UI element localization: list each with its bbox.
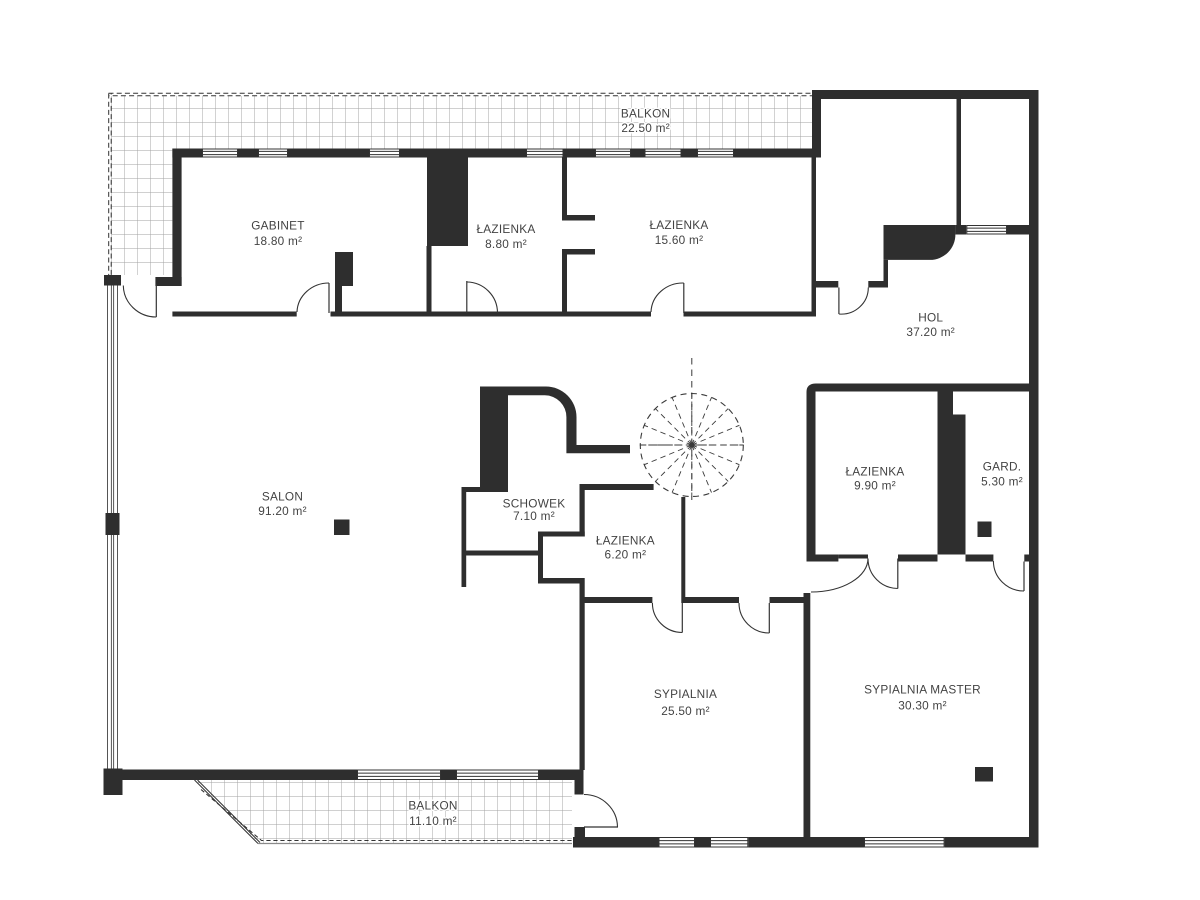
svg-text:18.80 m²: 18.80 m² — [254, 234, 303, 248]
svg-text:SALON: SALON — [262, 489, 303, 503]
svg-text:SYPIALNIA: SYPIALNIA — [654, 687, 717, 701]
svg-text:9.90 m²: 9.90 m² — [854, 478, 896, 492]
svg-text:ŁAZIENKA: ŁAZIENKA — [476, 222, 535, 236]
svg-text:ŁAZIENKA: ŁAZIENKA — [649, 218, 708, 232]
svg-text:15.60 m²: 15.60 m² — [655, 233, 704, 247]
svg-text:ŁAZIENKA: ŁAZIENKA — [845, 464, 904, 478]
svg-text:5.30 m²: 5.30 m² — [981, 475, 1023, 489]
svg-text:BALKON: BALKON — [621, 107, 670, 121]
svg-text:22.50 m²: 22.50 m² — [621, 121, 670, 135]
svg-text:GARD.: GARD. — [983, 460, 1022, 474]
svg-text:30.30 m²: 30.30 m² — [898, 698, 947, 712]
svg-text:BALKON: BALKON — [408, 798, 457, 812]
svg-text:37.20 m²: 37.20 m² — [906, 325, 955, 339]
svg-text:25.50 m²: 25.50 m² — [661, 704, 710, 718]
svg-text:ŁAZIENKA: ŁAZIENKA — [596, 533, 655, 547]
svg-text:SYPIALNIA MASTER: SYPIALNIA MASTER — [864, 683, 981, 697]
svg-text:91.20 m²: 91.20 m² — [258, 504, 307, 518]
svg-text:6.20 m²: 6.20 m² — [605, 547, 647, 561]
svg-text:GABINET: GABINET — [251, 218, 305, 232]
svg-text:8.80 m²: 8.80 m² — [485, 237, 527, 251]
svg-text:7.10 m²: 7.10 m² — [513, 509, 555, 523]
svg-text:HOL: HOL — [918, 310, 943, 324]
svg-text:11.10 m²: 11.10 m² — [409, 814, 457, 828]
